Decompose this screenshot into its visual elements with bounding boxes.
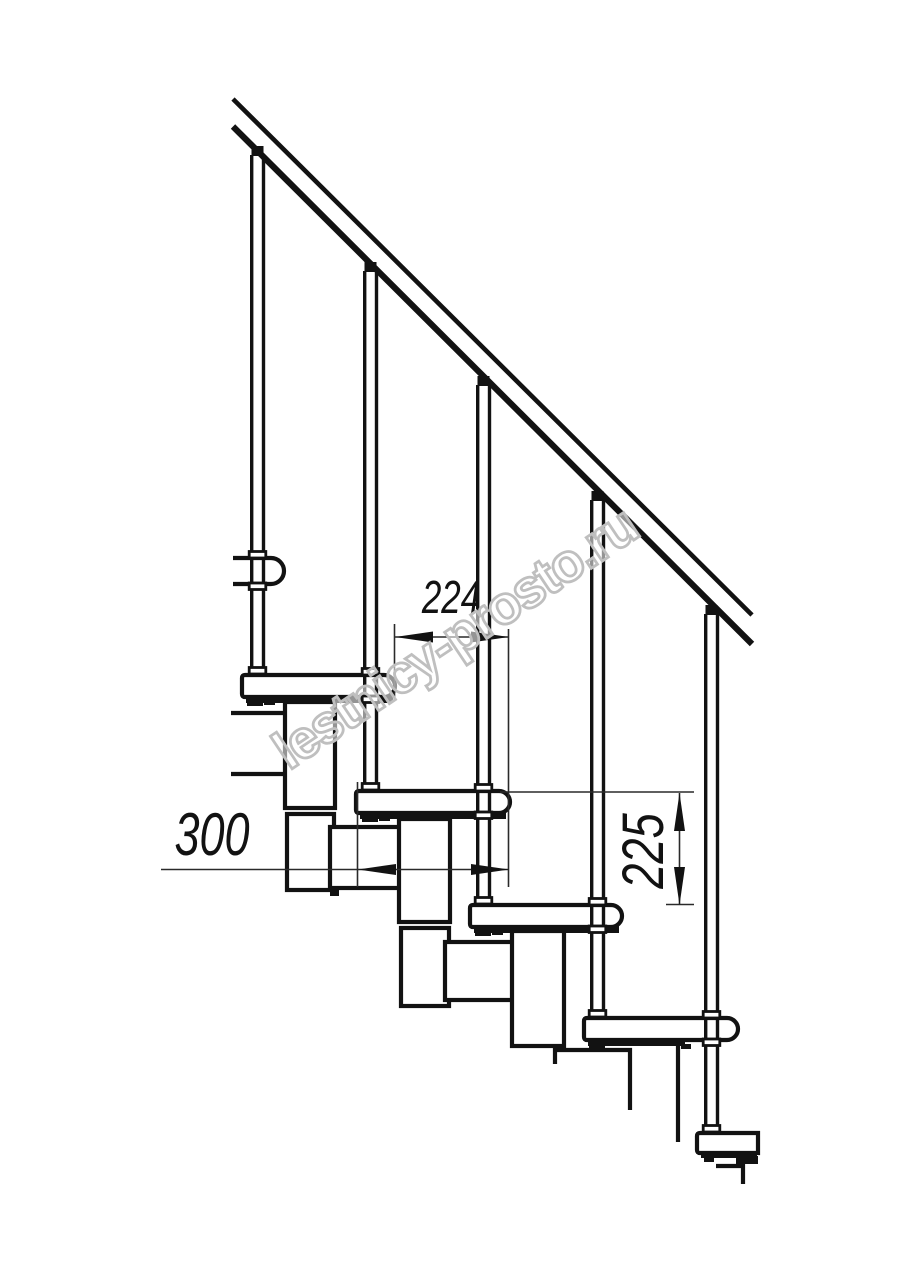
svg-text:lestnicy-prosto.ru: lestnicy-prosto.ru <box>262 495 647 781</box>
svg-text:300: 300 <box>174 802 249 869</box>
svg-text:225: 225 <box>612 812 677 889</box>
